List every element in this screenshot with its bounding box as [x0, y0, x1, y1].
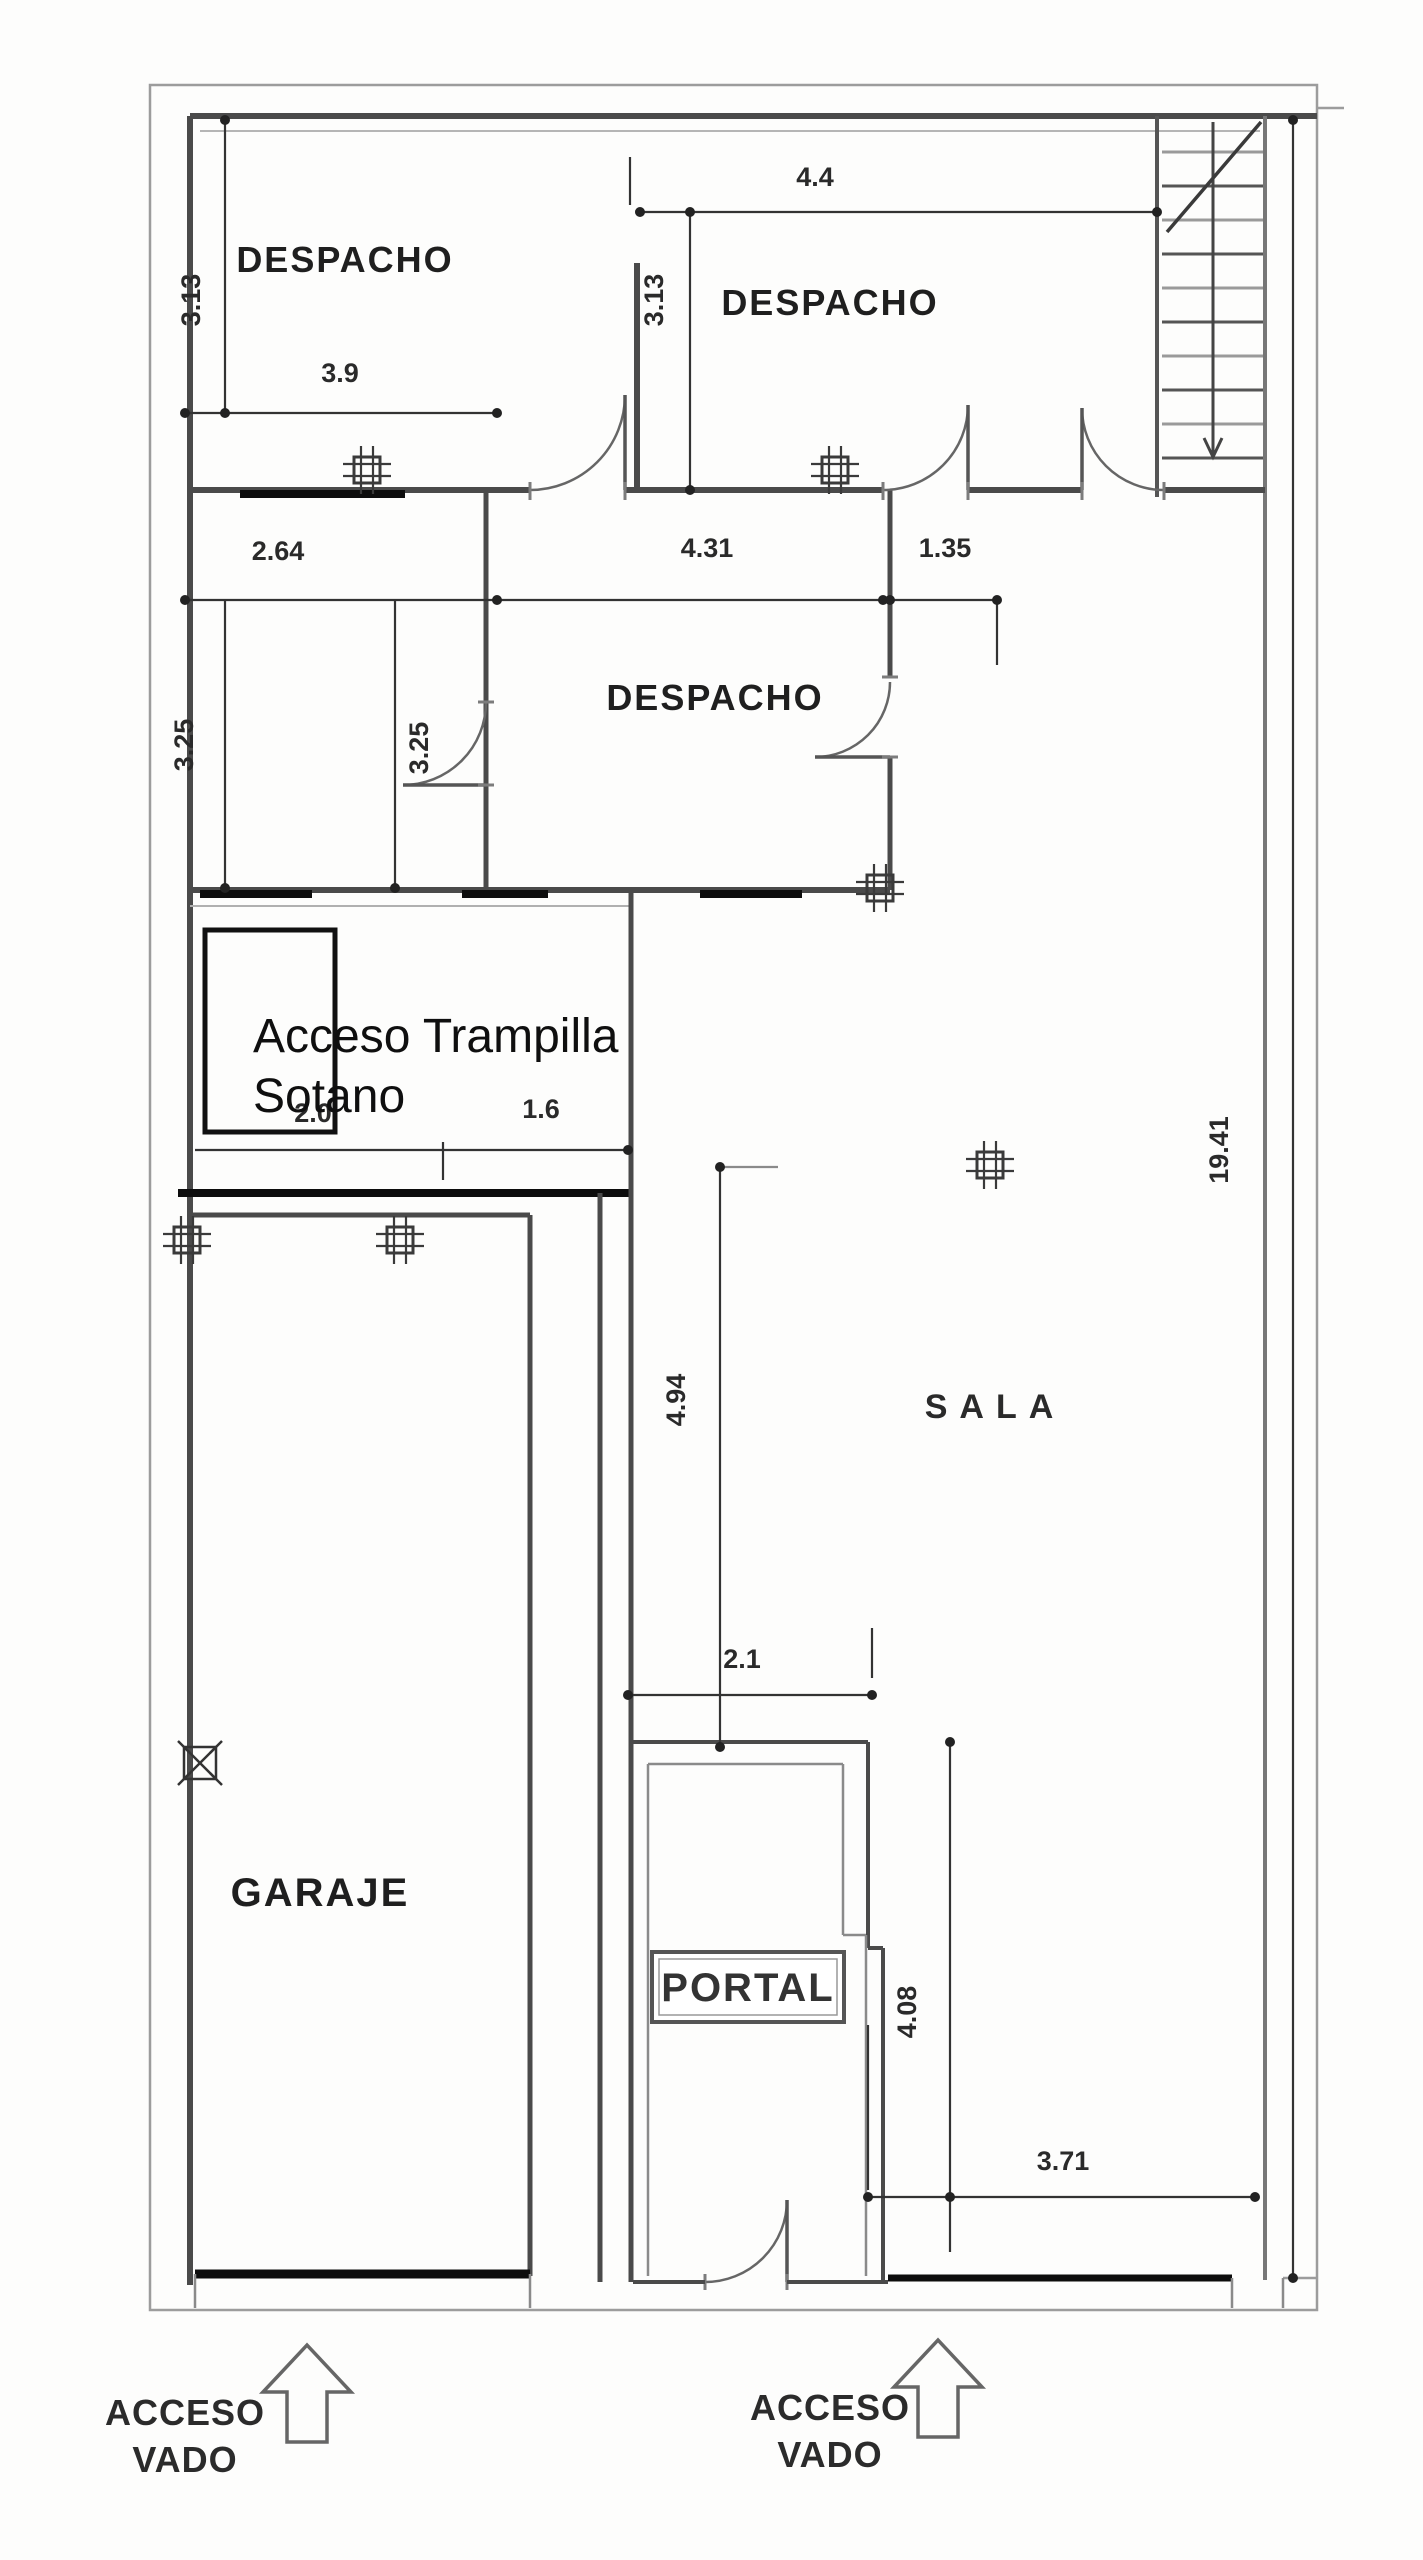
dim-21: 2.1 — [723, 1644, 761, 1674]
column-icon — [811, 446, 859, 494]
dim-39: 3.9 — [321, 358, 359, 388]
trapdoor-text-line1: Acceso Trampilla — [253, 1010, 619, 1063]
columns — [163, 446, 1014, 1264]
dim-313-left: 3.13 — [176, 274, 206, 327]
column-icon — [343, 446, 391, 494]
dim-408: 4.08 — [892, 1986, 922, 2039]
stairs — [1157, 116, 1263, 497]
floorplan-drawing: 3.13 3.9 4.4 3.13 2.64 4.31 1.35 3.25 3.… — [0, 0, 1423, 2560]
hollow-up-arrow-icon — [263, 2345, 351, 2442]
dim-431: 4.31 — [681, 533, 734, 563]
trapdoor-annotation: Acceso Trampilla Sotano — [253, 1010, 619, 1123]
access-left: ACCESO VADO — [105, 2345, 351, 2480]
door-top-right-office — [883, 405, 968, 490]
access-right-line2: VADO — [777, 2434, 882, 2475]
access-left-line1: ACCESO — [105, 2392, 265, 2433]
room-label-portal: PORTAL — [661, 1966, 834, 2010]
dim-325-right: 3.25 — [404, 722, 434, 775]
dim-313-right: 3.13 — [639, 274, 669, 327]
column-icon — [376, 1216, 424, 1264]
dim-264: 2.64 — [252, 536, 305, 566]
door-near-stairs — [1082, 408, 1164, 490]
room-label-despacho-top-left: DESPACHO — [236, 239, 453, 280]
room-label-garaje: GARAJE — [231, 1871, 410, 1915]
trapdoor-band-walls — [178, 1193, 633, 1215]
floorplan-page: 3.13 3.9 4.4 3.13 2.64 4.31 1.35 3.25 3.… — [0, 0, 1423, 2560]
dim-325-left: 3.25 — [169, 719, 199, 772]
dim-44: 4.4 — [796, 162, 834, 192]
room-label-sala: SALA — [925, 1388, 1066, 1426]
access-right: ACCESO VADO — [750, 2340, 982, 2475]
dim-371: 3.71 — [1037, 2146, 1090, 2176]
room-label-despacho-top-right: DESPACHO — [721, 282, 938, 323]
dim-1941: 19.41 — [1204, 1116, 1234, 1184]
room-labels: DESPACHO DESPACHO DESPACHO SALA GARAJE P… — [231, 239, 1066, 2010]
room-label-despacho-middle: DESPACHO — [606, 677, 823, 718]
bottom-edge — [195, 2274, 1283, 2308]
access-right-line1: ACCESO — [750, 2387, 910, 2428]
access-left-line2: VADO — [132, 2439, 237, 2480]
door-portal-entrance — [705, 2200, 787, 2282]
dim-135: 1.35 — [919, 533, 972, 563]
door-middle-office — [815, 682, 890, 757]
trapdoor-text-line2: Sotano — [253, 1070, 405, 1123]
dim-16: 1.6 — [522, 1094, 560, 1124]
door-top-left-office — [530, 395, 625, 490]
crossed-box-drain-icon — [178, 1741, 222, 1785]
dim-494: 4.94 — [661, 1374, 691, 1427]
column-icon — [966, 1141, 1014, 1189]
